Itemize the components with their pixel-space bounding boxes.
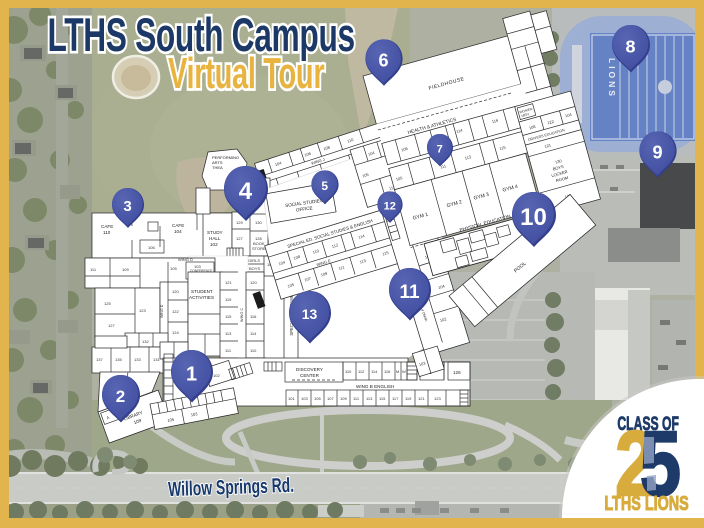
svg-text:GIRLS: GIRLS — [248, 258, 260, 263]
svg-text:123: 123 — [139, 308, 146, 313]
svg-text:119: 119 — [225, 297, 232, 302]
svg-text:WING C: WING C — [240, 308, 244, 322]
svg-text:102: 102 — [210, 242, 218, 247]
svg-text:CAFE: CAFE — [101, 224, 113, 229]
svg-text:ACTIVITIES: ACTIVITIES — [189, 295, 214, 300]
svg-text:12: 12 — [384, 201, 396, 213]
svg-text:110: 110 — [103, 230, 111, 235]
svg-text:120: 120 — [172, 289, 179, 294]
svg-text:9: 9 — [653, 142, 663, 162]
svg-text:M: M — [396, 369, 399, 374]
svg-text:112: 112 — [358, 369, 365, 374]
svg-text:DISCOVERY: DISCOVERY — [296, 367, 323, 372]
svg-text:W: W — [402, 369, 406, 374]
svg-text:121: 121 — [418, 396, 425, 401]
svg-text:129: 129 — [236, 220, 243, 225]
svg-text:121: 121 — [225, 280, 232, 285]
svg-text:11: 11 — [399, 282, 420, 303]
svg-text:10: 10 — [520, 204, 547, 231]
svg-text:THEA: THEA — [212, 165, 223, 170]
svg-text:2: 2 — [116, 387, 125, 406]
svg-text:126: 126 — [453, 370, 461, 375]
svg-text:CAFE: CAFE — [172, 223, 184, 228]
svg-text:117: 117 — [392, 396, 399, 401]
svg-text:125: 125 — [104, 301, 111, 306]
svg-text:Virtual Tour: Virtual Tour — [168, 48, 324, 98]
svg-text:1: 1 — [186, 363, 197, 385]
svg-text:122: 122 — [172, 309, 179, 314]
svg-text:8: 8 — [626, 36, 636, 56]
svg-text:106: 106 — [148, 245, 155, 250]
svg-text:111: 111 — [90, 267, 97, 272]
svg-text:6: 6 — [379, 50, 389, 70]
svg-text:105: 105 — [314, 396, 321, 401]
svg-text:123: 123 — [434, 396, 441, 401]
svg-text:13: 13 — [302, 306, 318, 322]
svg-text:WING B ENGLISH: WING B ENGLISH — [356, 384, 394, 389]
svg-text:105: 105 — [170, 266, 177, 271]
svg-text:111: 111 — [225, 348, 232, 353]
svg-text:135: 135 — [115, 357, 122, 362]
svg-text:130: 130 — [255, 220, 262, 225]
svg-text:Willow Springs Rd.: Willow Springs Rd. — [168, 473, 295, 501]
svg-text:STUDENT: STUDENT — [191, 289, 213, 294]
svg-text:5: 5 — [321, 179, 328, 193]
svg-text:132: 132 — [142, 339, 149, 344]
svg-text:102: 102 — [213, 373, 220, 378]
svg-text:120: 120 — [250, 280, 257, 285]
svg-text:131: 131 — [153, 357, 160, 362]
svg-text:110: 110 — [250, 348, 257, 353]
svg-text:113: 113 — [225, 331, 232, 336]
svg-text:WING D: WING D — [178, 257, 193, 262]
svg-text:107: 107 — [327, 396, 334, 401]
svg-text:7: 7 — [437, 144, 443, 156]
svg-text:115: 115 — [225, 314, 232, 319]
svg-text:STORE: STORE — [252, 246, 266, 251]
svg-text:103: 103 — [301, 396, 308, 401]
svg-text:BOYS: BOYS — [249, 266, 260, 271]
svg-text:116: 116 — [384, 369, 391, 374]
svg-text:WING D: WING D — [160, 304, 164, 318]
svg-text:109: 109 — [122, 267, 129, 272]
svg-text:109: 109 — [340, 396, 347, 401]
svg-text:110: 110 — [345, 369, 352, 374]
svg-text:116: 116 — [250, 314, 257, 319]
svg-text:4: 4 — [239, 178, 253, 205]
svg-text:3: 3 — [123, 198, 131, 215]
svg-text:119: 119 — [405, 396, 412, 401]
svg-text:137: 137 — [96, 357, 103, 362]
svg-text:HALL: HALL — [209, 236, 221, 241]
svg-text:114: 114 — [371, 369, 378, 374]
svg-text:115: 115 — [379, 396, 386, 401]
svg-text:113: 113 — [366, 396, 373, 401]
svg-text:STUDY: STUDY — [207, 230, 223, 235]
svg-text:127: 127 — [236, 236, 243, 241]
svg-text:LTHS LIONS: LTHS LIONS — [604, 492, 688, 515]
svg-text:124: 124 — [172, 330, 179, 335]
svg-text:101: 101 — [288, 396, 295, 401]
svg-text:104: 104 — [174, 229, 182, 234]
svg-text:133: 133 — [134, 357, 141, 362]
svg-text:114: 114 — [250, 331, 257, 336]
svg-text:CENTER: CENTER — [300, 373, 320, 378]
svg-text:111: 111 — [353, 396, 360, 401]
svg-text:127: 127 — [108, 323, 115, 328]
